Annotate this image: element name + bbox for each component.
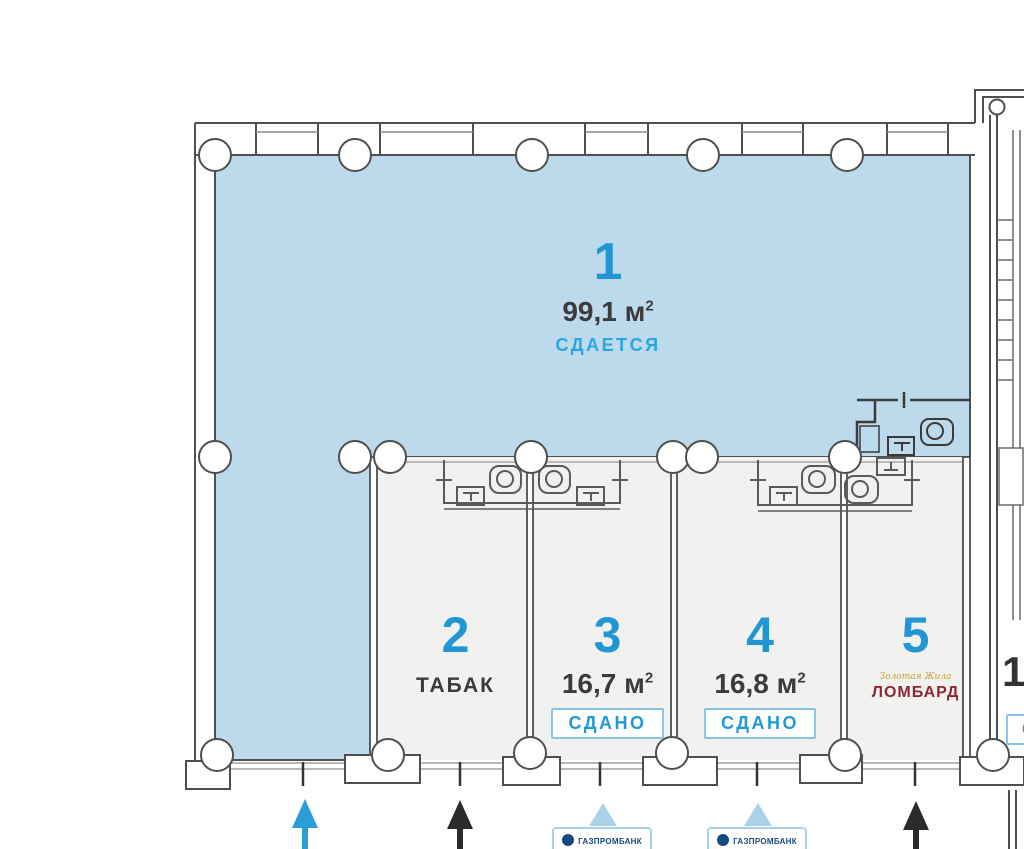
column-icon xyxy=(199,441,231,473)
unit-number: 2 xyxy=(383,610,528,660)
bank-name: ГАЗПРОМБАНК xyxy=(733,837,797,846)
atm-box[interactable]: ГАЗПРОМБАНК xyxy=(552,827,652,849)
column-icon xyxy=(199,139,231,171)
column-icon xyxy=(514,737,546,769)
unit-area: 16,7 м2 xyxy=(535,669,680,700)
unit-3-label[interactable]: 3 16,7 м2 СДАНО xyxy=(535,610,680,739)
unit-area: 99,1 м2 xyxy=(518,297,698,328)
gazprombank-logo-icon xyxy=(562,834,574,846)
unit-number: 1 xyxy=(518,236,698,288)
column-icon xyxy=(201,739,233,771)
unit-partial-number[interactable]: 1 xyxy=(1002,648,1024,696)
unit-tenant: ЛОМБАРД xyxy=(843,684,988,702)
column-icon xyxy=(339,441,371,473)
floor-plan: 1 99,1 м2 СДАЕТСЯ 2 ТАБАК 3 16,7 м2 СДАН… xyxy=(0,0,1024,849)
column-icon xyxy=(656,737,688,769)
column-icon xyxy=(657,441,689,473)
column-icon xyxy=(831,139,863,171)
bank-name: ГАЗПРОМБАНК xyxy=(578,837,642,846)
unit-number: 5 xyxy=(843,610,988,660)
unit-5-label[interactable]: 5 Золотая Жила ЛОМБАРД xyxy=(843,610,988,702)
tenant-brand-script: Золотая Жила xyxy=(843,673,988,682)
gazprombank-logo-icon xyxy=(717,834,729,846)
status-badge: СДАНО xyxy=(551,708,663,740)
column-icon xyxy=(339,139,371,171)
entrance-arrow-unit-1-icon xyxy=(292,799,318,849)
atm-marker-icon xyxy=(589,803,617,826)
unit-partial-status-badge: С xyxy=(1006,714,1024,745)
unit-status: СДАЕТСЯ xyxy=(518,335,698,356)
floor-plan-drawing xyxy=(0,0,1024,849)
unit-1-label[interactable]: 1 99,1 м2 СДАЕТСЯ xyxy=(518,236,698,356)
unit-area: 16,8 м2 xyxy=(685,669,835,700)
column-icon xyxy=(686,441,718,473)
unit-2-label[interactable]: 2 ТАБАК xyxy=(383,610,528,698)
column-icon xyxy=(515,441,547,473)
column-icon xyxy=(829,441,861,473)
column-icon xyxy=(977,739,1009,771)
atm-box[interactable]: ГАЗПРОМБАНК xyxy=(707,827,807,849)
column-icon xyxy=(516,139,548,171)
column-icon xyxy=(829,739,861,771)
unit-number: 3 xyxy=(535,610,680,660)
unit-4-label[interactable]: 4 16,8 м2 СДАНО xyxy=(685,610,835,739)
entrance-arrow-unit-2-icon xyxy=(447,800,473,849)
entrance-arrow-unit-5-icon xyxy=(903,801,929,849)
atm-marker-icon xyxy=(744,803,772,826)
column-icon xyxy=(374,441,406,473)
status-badge: СДАНО xyxy=(704,708,816,740)
column-icon xyxy=(372,739,404,771)
unit-number: 4 xyxy=(685,610,835,660)
unit-tenant: ТАБАК xyxy=(383,674,528,698)
column-icon xyxy=(687,139,719,171)
